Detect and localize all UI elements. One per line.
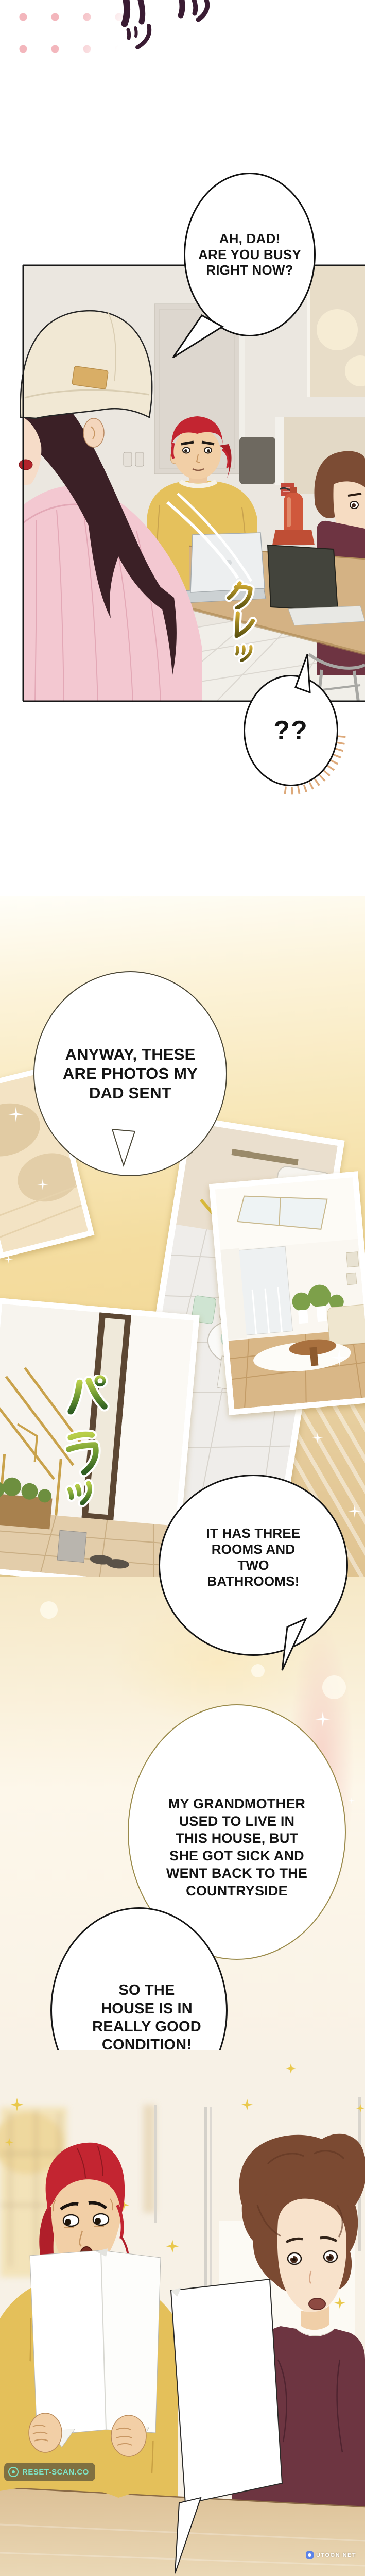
bokeh-decor: [251, 1664, 265, 1677]
line: WENT BACK TO THE: [166, 1865, 307, 1883]
bokeh-decor: [40, 1601, 58, 1619]
speech-text: SO THE HOUSE IS IN REALLY GOOD CONDITION…: [77, 1966, 201, 2055]
watermark-text: RESET-SCAN.CO: [22, 2468, 89, 2477]
speech-text: ANYWAY, THESE ARE PHOTOS MY DAD SENT: [63, 1045, 198, 1103]
line: REALLY GOOD: [92, 2018, 201, 2036]
line: ARE YOU BUSY: [198, 247, 301, 263]
line: SO THE: [92, 1981, 201, 1999]
line: DAD SENT: [63, 1083, 198, 1103]
bubble-tail: [288, 648, 319, 697]
watermark-utoon: UTOON NET: [306, 2551, 356, 2559]
line: ANYWAY, THESE: [63, 1045, 198, 1064]
bubble-tail: [106, 1123, 147, 1172]
line: RIGHT NOW?: [198, 262, 301, 278]
line: TWO: [206, 1557, 301, 1573]
photo-living-room: [209, 1171, 365, 1415]
watermark-text: UTOON NET: [316, 2552, 356, 2558]
speech-text: IT HAS THREE ROOMS AND TWO BATHROOMS!: [206, 1526, 301, 1605]
speech-bubble-rooms: IT HAS THREE ROOMS AND TWO BATHROOMS!: [159, 1475, 348, 1656]
webtoon-page: AH, DAD! ARE YOU BUSY RIGHT NOW? ??: [0, 0, 365, 2576]
bubble-tail: [167, 309, 229, 363]
line: HOUSE IS IN: [92, 2000, 201, 2018]
line: ARE PHOTOS MY: [63, 1064, 198, 1083]
bubble-tail: [275, 1613, 317, 1677]
line: IT HAS THREE: [206, 1526, 301, 1541]
scan-logo-icon: [8, 2467, 19, 2477]
line: BATHROOMS!: [206, 1573, 301, 1589]
line: MY GRANDMOTHER: [166, 1795, 307, 1813]
speech-text: MY GRANDMOTHER USED TO LIVE IN THIS HOUS…: [166, 1765, 307, 1900]
sparkle-icon: [348, 1797, 355, 1804]
speech-text: AH, DAD! ARE YOU BUSY RIGHT NOW?: [198, 231, 301, 278]
watermark-reset-scan: RESET-SCAN.CO: [4, 2463, 95, 2481]
line: SHE GOT SICK AND: [166, 1848, 307, 1865]
line: THIS HOUSE, BUT: [166, 1830, 307, 1848]
line: AH, DAD!: [198, 231, 301, 247]
bokeh-decor: [322, 1675, 346, 1699]
line: ??: [273, 715, 308, 746]
sparkle-icon: [315, 1711, 331, 1727]
utoon-logo-icon: [306, 2551, 314, 2559]
line: COUNTRYSIDE: [166, 1883, 307, 1900]
speech-text: ??: [273, 715, 308, 746]
scene-reading-papers: [0, 2050, 365, 2576]
line: ROOMS AND: [206, 1541, 301, 1557]
sfx-top-tsu-icon: [116, 0, 214, 57]
line: USED TO LIVE IN: [166, 1813, 307, 1831]
sfx-para-icon: [58, 1375, 130, 1545]
